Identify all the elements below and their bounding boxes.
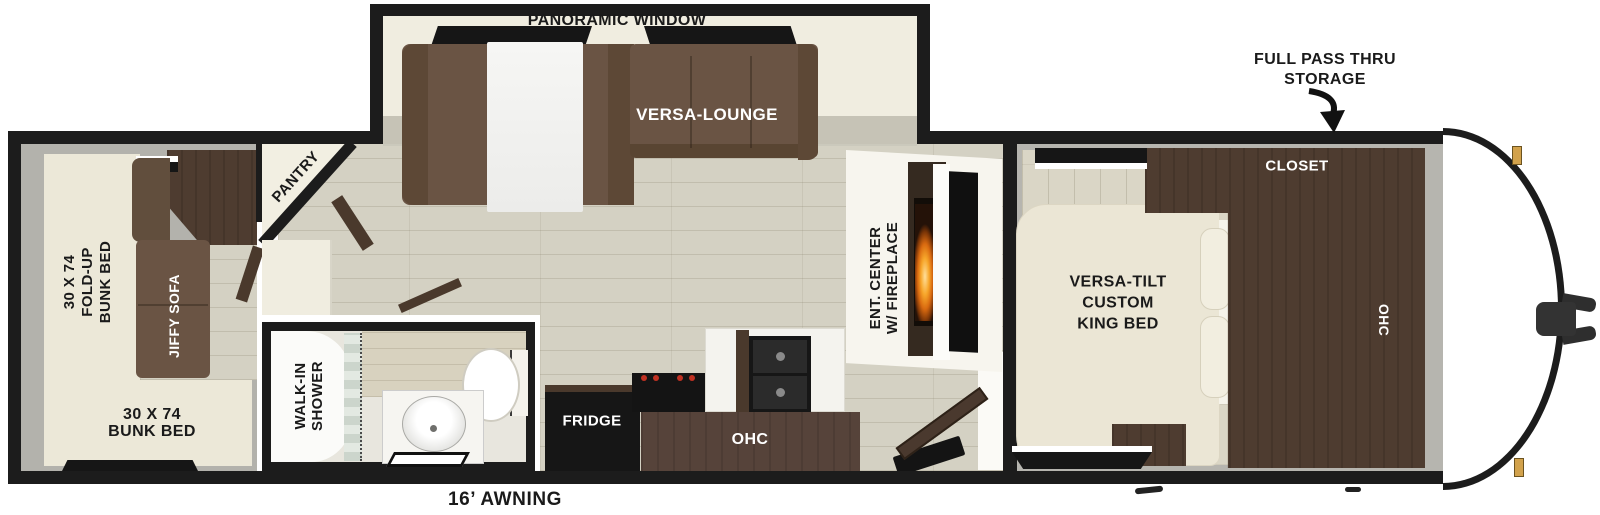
fridge <box>545 392 640 471</box>
stabilizer-mark <box>1135 486 1163 495</box>
marker-light-icon <box>1512 146 1522 165</box>
bedroom-top-window-icon <box>1035 148 1147 163</box>
sink-drain <box>430 425 437 432</box>
closet-label: CLOSET <box>1265 157 1328 174</box>
walk-in-line1: WALK-IN <box>292 361 309 431</box>
king-bed-line3: KING BED <box>1069 314 1166 335</box>
tv-icon <box>949 171 978 353</box>
walk-in-line2: SHOWER <box>309 361 326 431</box>
fridge-label: FRIDGE <box>562 412 621 429</box>
foldup-bunk-line3: BUNK BED <box>97 241 115 323</box>
pillow <box>1200 228 1230 310</box>
bedroom-bottom-window-sill <box>1012 446 1152 452</box>
burner-knob2 <box>653 375 659 381</box>
ent-center-label: ENT. CENTER W/ FIREPLACE <box>867 222 901 334</box>
versa-lounge-cushion-seam2 <box>750 56 752 148</box>
slideout-wall-right <box>917 4 930 144</box>
burner-knob4 <box>689 375 695 381</box>
floorplan-diagram: PANORAMIC WINDOW VERSA-LOUNGE JIFFY SOFA… <box>0 0 1600 515</box>
versa-lounge-sofa <box>630 44 818 156</box>
rear-bottom-window-icon <box>62 460 198 471</box>
sink-basin2-drain <box>776 388 785 397</box>
shower-glass <box>344 333 362 461</box>
versa-lounge-front <box>630 144 818 158</box>
king-bed-label: VERSA-TILT CUSTOM KING BED <box>1069 272 1166 335</box>
jiffy-sofa-label: JIFFY SOFA <box>166 274 182 358</box>
burner-knob3 <box>677 375 683 381</box>
outer-wall-bottom <box>8 471 1462 484</box>
bedroom-top-window-sill <box>1035 163 1147 169</box>
walk-in-shower-label: WALK-IN SHOWER <box>292 361 326 431</box>
versa-lounge-arm <box>798 44 818 160</box>
foldup-bunk-line2: FOLD-UP <box>79 241 97 323</box>
versa-lounge-cushion-seam <box>690 56 692 148</box>
stabilizer-mark2 <box>1345 487 1361 492</box>
sofa-bed-runner <box>487 42 583 212</box>
foldup-bunk-line1: 30 X 74 <box>61 241 79 323</box>
hall-cabinet <box>262 240 332 322</box>
ent-center-line2: W/ FIREPLACE <box>884 222 901 334</box>
king-bed-line2: CUSTOM <box>1069 293 1166 314</box>
bath-mat <box>386 452 470 467</box>
fireplace-flame-icon <box>915 204 935 321</box>
foldup-bunk-label: 30 X 74 FOLD-UP BUNK BED <box>61 241 115 323</box>
awning-label: 16’ AWNING <box>448 489 562 511</box>
bedroom-ohc-label: OHC <box>1376 304 1392 336</box>
lower-bunk-label: 30 X 74 BUNK BED <box>108 406 196 440</box>
outer-wall-left <box>8 131 21 484</box>
hitch-coupler-icon <box>1536 302 1576 336</box>
storage-callout-line1: FULL PASS THRU <box>1254 50 1396 70</box>
bath-sink-icon <box>402 396 466 452</box>
ent-center-line1: ENT. CENTER <box>867 222 884 334</box>
ent-center-shelf <box>933 164 950 360</box>
jiffy-sofa-back <box>132 158 170 242</box>
pillow2 <box>1200 316 1230 398</box>
outer-wall-top-right <box>917 131 1462 144</box>
storage-callout-line2: STORAGE <box>1254 70 1396 90</box>
versa-lounge-label: VERSA-LOUNGE <box>636 105 778 125</box>
sink-basin-drain <box>776 352 785 361</box>
counter-divider <box>736 330 749 412</box>
marker-light2-icon <box>1514 458 1524 477</box>
storage-callout-label: FULL PASS THRU STORAGE <box>1254 50 1396 90</box>
outer-wall-top-left <box>8 131 382 144</box>
bedroom-divider-wall <box>1003 144 1017 471</box>
kitchen-ohc-label: OHC <box>732 431 769 449</box>
lower-bunk-line2: BUNK BED <box>108 423 196 440</box>
storage-arrow-icon <box>1305 88 1351 136</box>
sofa-bed-left-arm <box>402 44 428 205</box>
king-bed-line1: VERSA-TILT <box>1069 272 1166 293</box>
lower-bunk-line1: 30 X 74 <box>108 406 196 423</box>
burner-knob <box>641 375 647 381</box>
bedroom-bottom-window-icon <box>1012 452 1152 469</box>
slideout-wall-left <box>370 4 383 144</box>
